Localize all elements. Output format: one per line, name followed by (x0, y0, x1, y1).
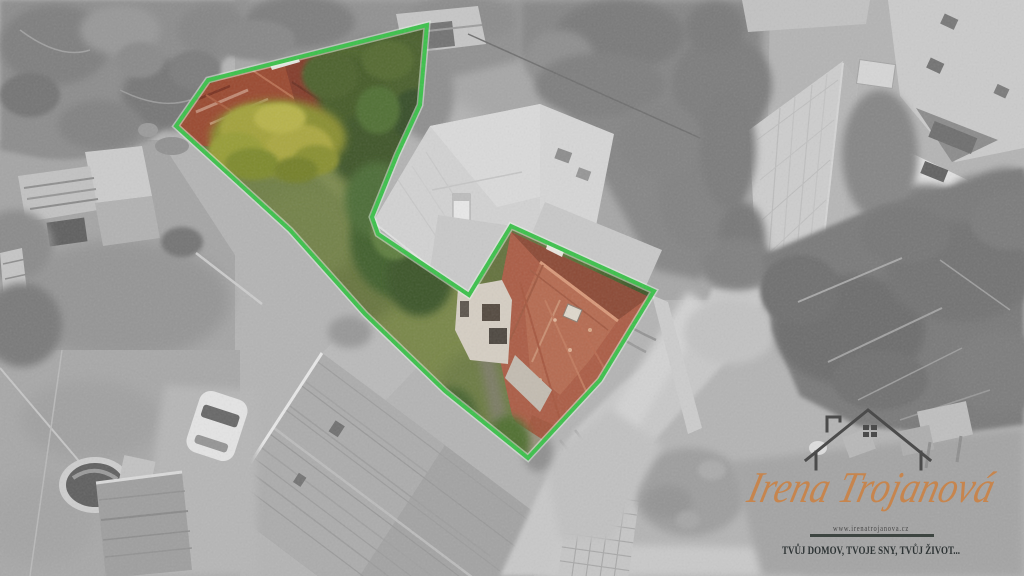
svg-text:Irena Trojanová: Irena Trojanová (742, 463, 1000, 512)
svg-text:www.irenatrojanova.cz: www.irenatrojanova.cz (833, 523, 909, 533)
svg-text:TVŮJ DOMOV, TVOJE SNY, TVŮJ ŽI: TVŮJ DOMOV, TVOJE SNY, TVŮJ ŽIVOT... (782, 542, 960, 557)
